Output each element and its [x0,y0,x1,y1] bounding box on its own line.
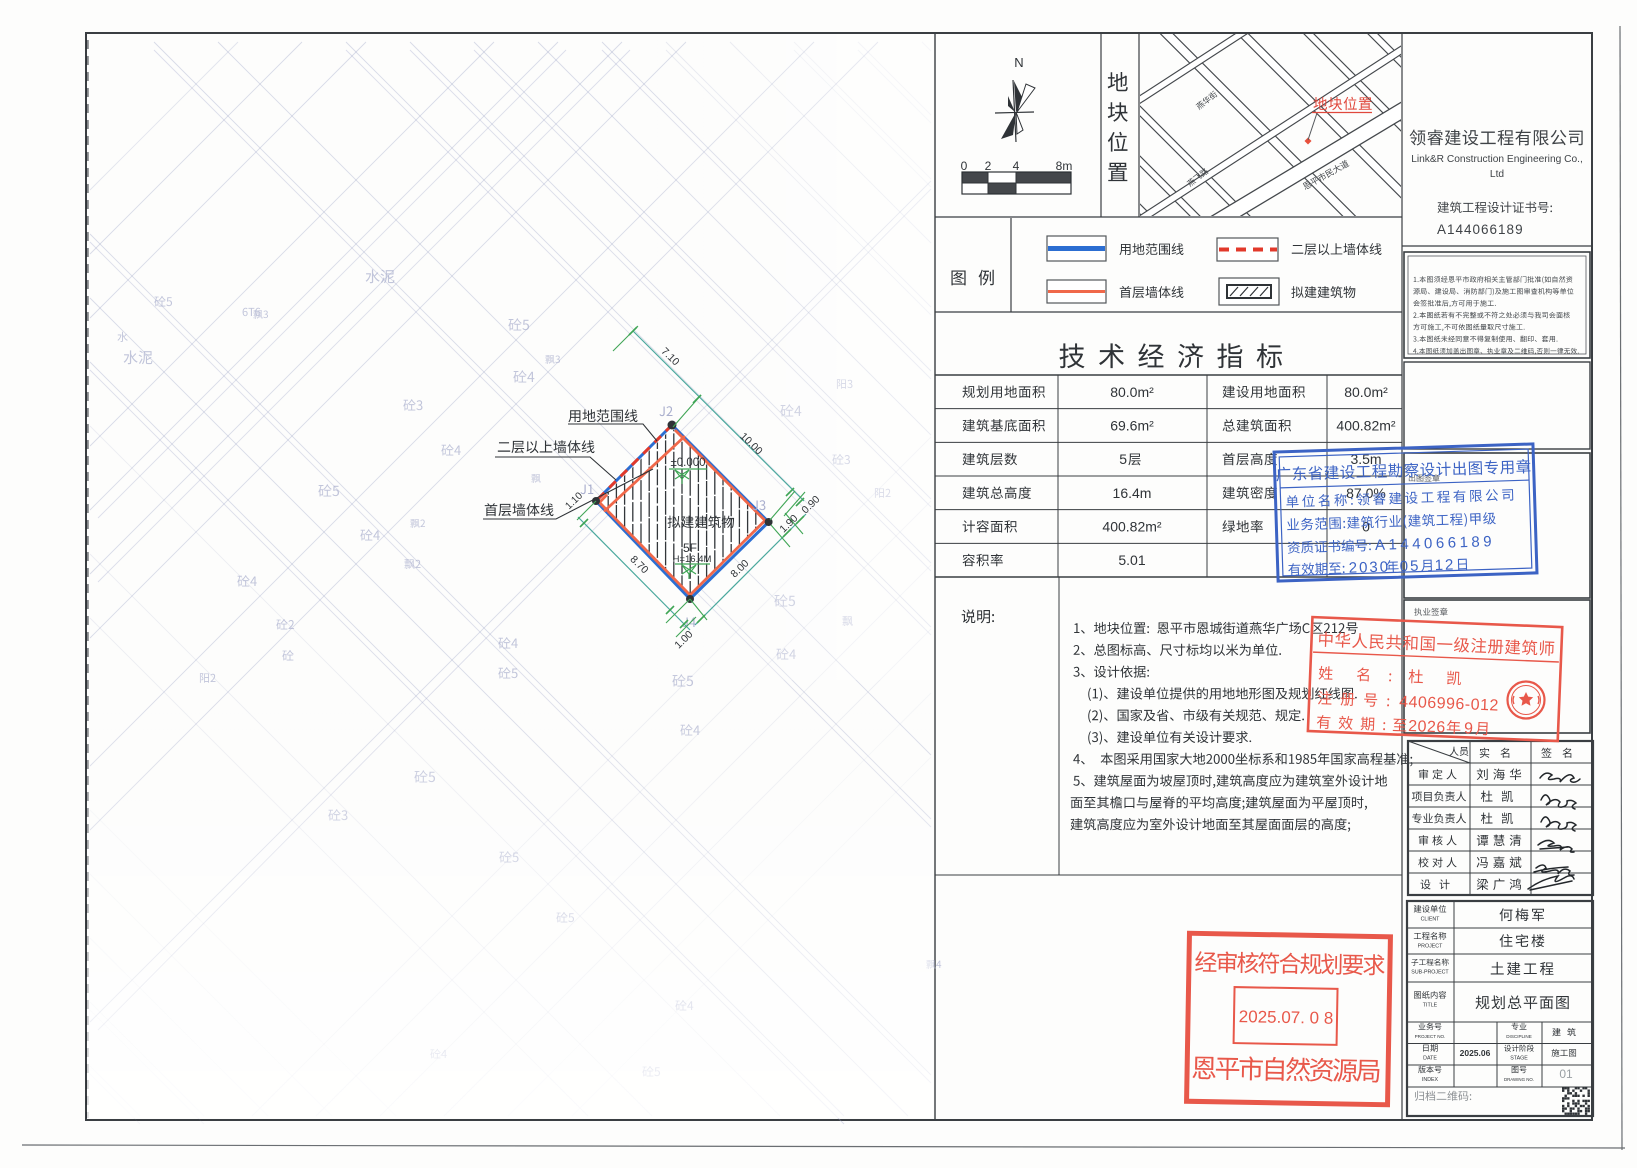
svg-text:05: 05 [1399,558,1420,576]
svg-text:DRAWING NO.: DRAWING NO. [1504,1077,1534,1082]
svg-text:2025.07. 0 8: 2025.07. 0 8 [1239,1007,1334,1028]
svg-text:16.4m: 16.4m [1113,485,1152,501]
svg-text:8m: 8m [1056,159,1073,173]
svg-text:5.01: 5.01 [1118,552,1145,568]
svg-text:400.82m²: 400.82m² [1336,418,1395,434]
svg-text:PROJECT NO.: PROJECT NO. [1415,1034,1446,1039]
svg-text:INDEX: INDEX [1422,1077,1439,1083]
svg-text:0: 0 [961,159,968,173]
svg-text:01: 01 [1559,1067,1573,1081]
svg-text:2: 2 [985,159,992,173]
svg-text:±0.000: ±0.000 [670,457,705,469]
svg-text:2030: 2030 [1348,558,1390,576]
svg-text:PROJECT: PROJECT [1418,944,1443,950]
svg-text:CLIENT: CLIENT [1421,917,1441,923]
svg-text:5F: 5F [683,541,697,555]
svg-text:4: 4 [1013,159,1020,173]
svg-text:80.0m²: 80.0m² [1344,384,1388,400]
svg-text:DATE: DATE [1423,1056,1437,1062]
svg-text:2025.06: 2025.06 [1460,1048,1491,1058]
svg-text:Link&R Construction Engineer: Link&R Construction Engineering Co., [1411,154,1583,165]
svg-text:Ltd: Ltd [1490,169,1504,180]
svg-text:5: 5 [1119,451,1127,467]
svg-text:9: 9 [1464,720,1474,737]
svg-text:STAGE: STAGE [1510,1056,1528,1062]
svg-text:2026: 2026 [1408,718,1446,736]
svg-text:DISCIPLINE: DISCIPLINE [1506,1034,1532,1039]
svg-text:H=16.4M: H=16.4M [673,554,712,565]
svg-text:12: 12 [1434,556,1455,574]
svg-text:TITLE: TITLE [1423,1003,1438,1009]
svg-text:N: N [1014,55,1023,70]
svg-text:SUB-PROJECT: SUB-PROJECT [1411,970,1449,976]
svg-text:A144066189: A144066189 [1437,222,1524,237]
svg-text:80.0m²: 80.0m² [1110,384,1154,400]
svg-text:400.82m²: 400.82m² [1102,519,1161,535]
svg-text:69.6m²: 69.6m² [1110,418,1154,434]
